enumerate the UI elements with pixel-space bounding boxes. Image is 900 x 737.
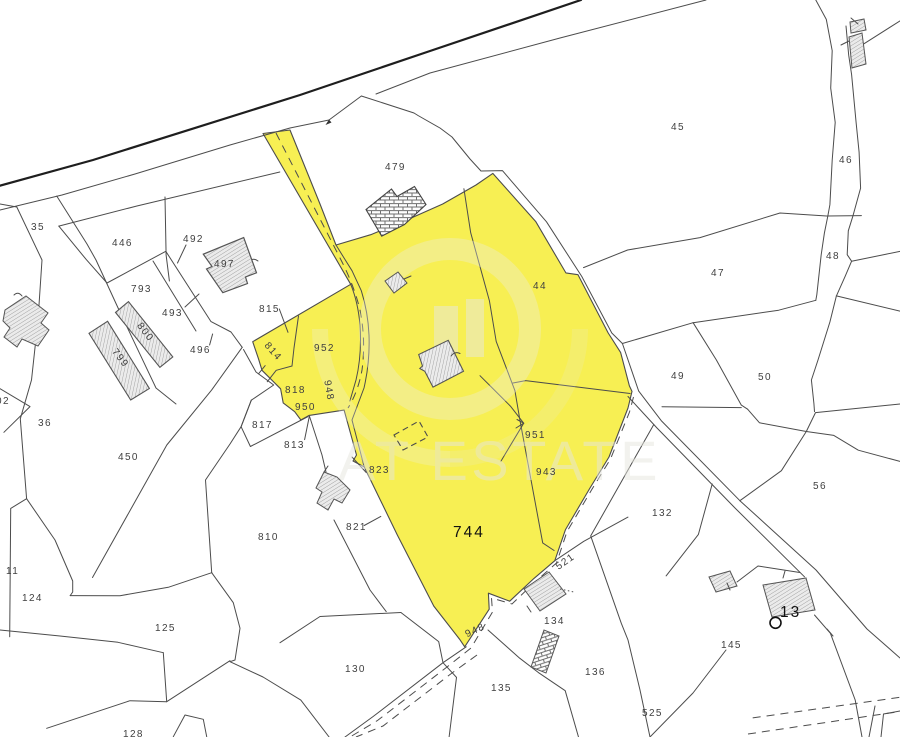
svg-text:446: 446 bbox=[112, 238, 133, 249]
svg-text:525: 525 bbox=[642, 708, 663, 719]
svg-text:813: 813 bbox=[284, 440, 305, 451]
svg-text:11: 11 bbox=[6, 566, 19, 577]
svg-text:46: 46 bbox=[839, 155, 853, 166]
svg-text:810: 810 bbox=[258, 532, 279, 543]
svg-text:135: 135 bbox=[491, 683, 512, 694]
svg-text:950: 950 bbox=[295, 402, 316, 413]
svg-text:13: 13 bbox=[780, 604, 801, 621]
svg-text:44: 44 bbox=[533, 281, 547, 292]
svg-text:132: 132 bbox=[652, 508, 673, 519]
svg-text:124: 124 bbox=[22, 593, 43, 604]
svg-text:145: 145 bbox=[721, 640, 742, 651]
svg-text:134: 134 bbox=[544, 616, 565, 627]
svg-text:496: 496 bbox=[190, 345, 211, 356]
svg-text:36: 36 bbox=[38, 418, 52, 429]
svg-text:AT ESTATE: AT ESTATE bbox=[338, 429, 661, 492]
svg-text:943: 943 bbox=[536, 467, 557, 478]
svg-text:35: 35 bbox=[31, 222, 45, 233]
svg-text:450: 450 bbox=[118, 452, 139, 463]
svg-text:823: 823 bbox=[369, 465, 390, 476]
svg-text:45: 45 bbox=[671, 122, 685, 133]
svg-text:02: 02 bbox=[0, 396, 10, 407]
svg-text:817: 817 bbox=[252, 420, 273, 431]
svg-text:492: 492 bbox=[183, 234, 204, 245]
svg-text:47: 47 bbox=[711, 268, 725, 279]
svg-text:136: 136 bbox=[585, 667, 606, 678]
svg-text:821: 821 bbox=[346, 522, 367, 533]
svg-text:479: 479 bbox=[385, 162, 406, 173]
svg-text:793: 793 bbox=[131, 284, 152, 295]
svg-text:125: 125 bbox=[155, 623, 176, 634]
svg-text:56: 56 bbox=[813, 481, 827, 492]
svg-text:497: 497 bbox=[214, 259, 235, 270]
svg-text:744: 744 bbox=[453, 524, 485, 541]
svg-text:50: 50 bbox=[758, 372, 772, 383]
svg-text:49: 49 bbox=[671, 371, 685, 382]
svg-text:128: 128 bbox=[123, 729, 144, 737]
svg-text:818: 818 bbox=[285, 385, 306, 396]
svg-text:48: 48 bbox=[826, 251, 840, 262]
svg-text:493: 493 bbox=[162, 308, 183, 319]
svg-text:951: 951 bbox=[525, 430, 546, 441]
svg-text:130: 130 bbox=[345, 664, 366, 675]
svg-text:815: 815 bbox=[259, 304, 280, 315]
svg-text:952: 952 bbox=[314, 343, 335, 354]
